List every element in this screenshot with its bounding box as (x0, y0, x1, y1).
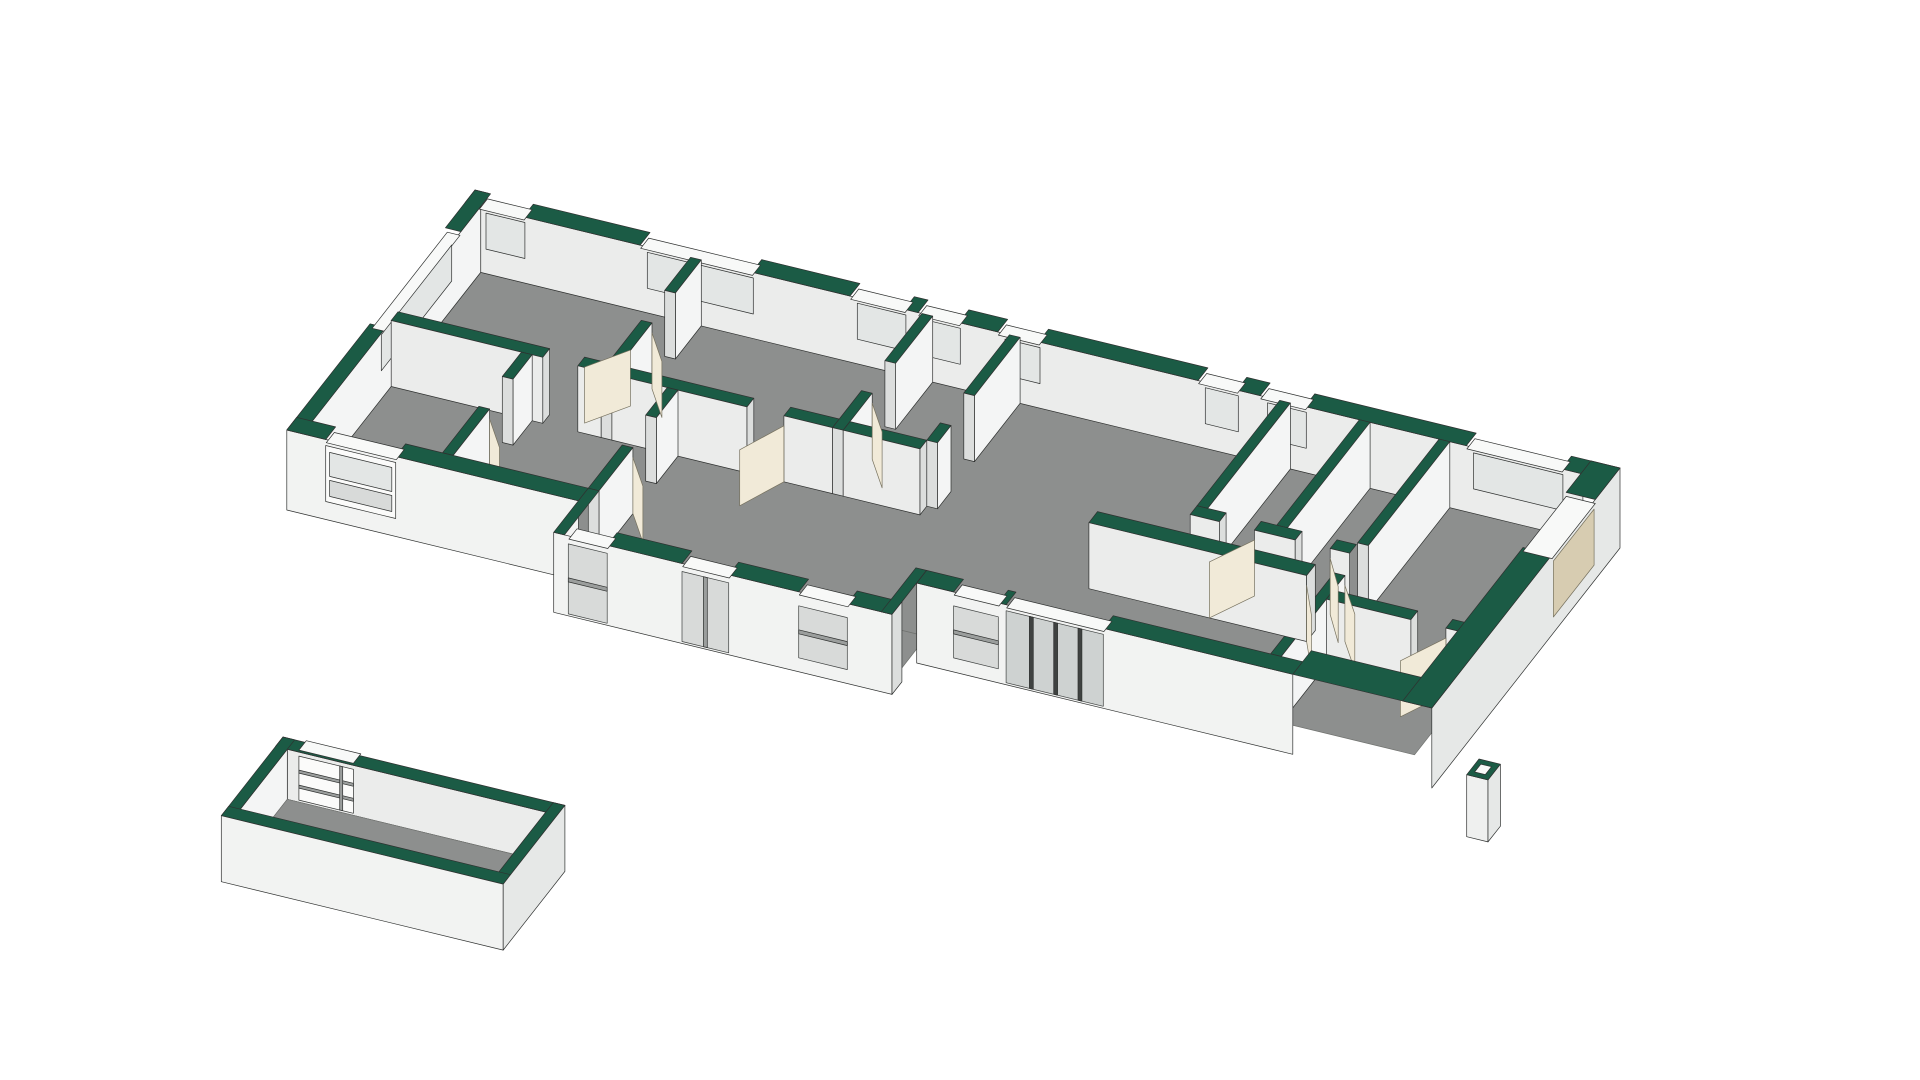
wall-end (892, 602, 902, 695)
wall-end (927, 440, 938, 509)
wall-face (784, 416, 833, 494)
chimney-front-face (1467, 775, 1488, 842)
wall-end (502, 377, 513, 446)
wall-end (646, 415, 657, 484)
wall-end (833, 428, 844, 497)
canvas (0, 0, 1920, 1080)
window-pane (1205, 388, 1238, 432)
glazing-mullion (703, 577, 707, 648)
garage (221, 737, 565, 950)
chimney (1467, 759, 1501, 842)
garage-door-stile (340, 766, 343, 811)
wall-end (920, 440, 927, 515)
glazing-mullion (1029, 616, 1033, 689)
wall-end (885, 361, 896, 430)
wall-end (964, 393, 975, 462)
wall-end (665, 290, 676, 359)
wall-end (543, 349, 550, 424)
floor-plan-3d-view (0, 0, 1920, 1080)
main-building (287, 190, 1620, 788)
glazing-mullion (1078, 628, 1082, 701)
page: { "scene": { "background": "#ffffff", "v… (0, 0, 1920, 1080)
glazing-mullion (1054, 622, 1058, 695)
